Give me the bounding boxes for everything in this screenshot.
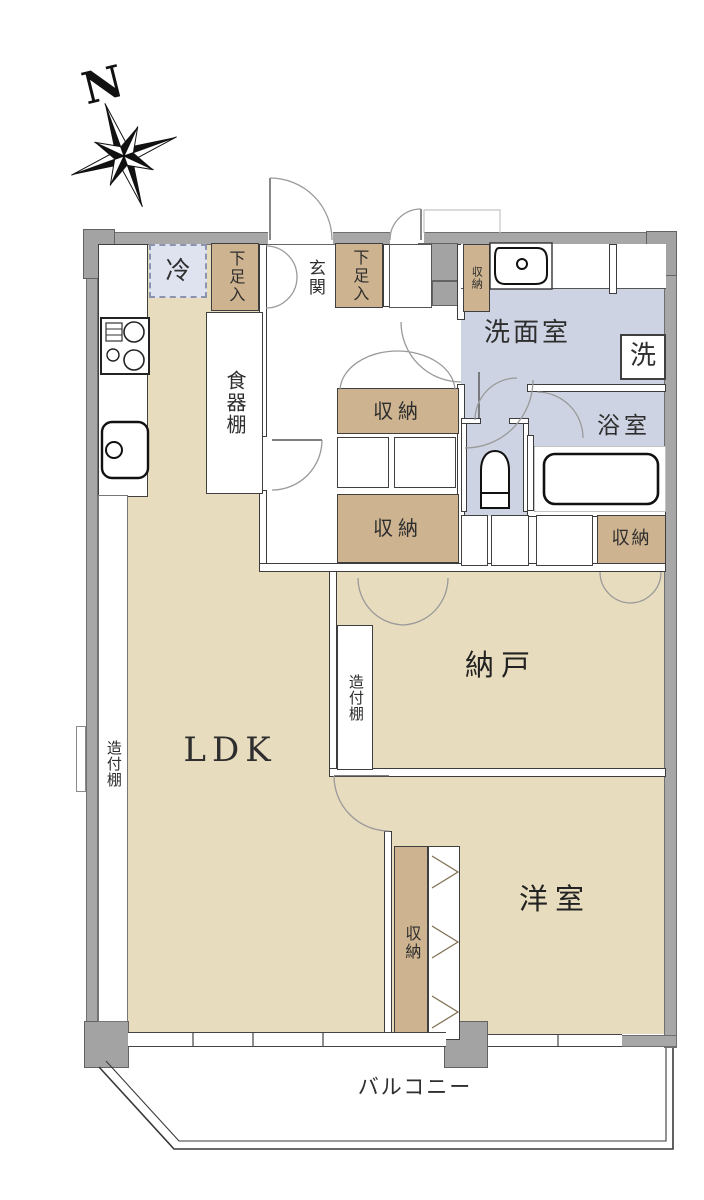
closet-folding-door-marks <box>432 856 458 1028</box>
linework-overlay <box>0 0 704 1200</box>
storageroom-door-arc-2 <box>403 578 448 625</box>
porch-door-arc <box>390 209 421 240</box>
entrance-closet-arc-1 <box>266 246 297 277</box>
entrance-closet-arc-2 <box>266 277 297 308</box>
storageroom-door-arc-3 <box>600 572 630 603</box>
floor-plan: N <box>0 0 704 1200</box>
storageroom-door-arc-4 <box>630 572 661 603</box>
ldk-door-arc <box>272 440 322 490</box>
balcony-outline-outer <box>99 1048 673 1149</box>
hall-closet-arc-1 <box>340 351 397 390</box>
window-mullions <box>193 1033 558 1046</box>
storageroom-door-arc-1 <box>358 578 403 625</box>
western-door-arc <box>334 776 389 831</box>
entrance-door-arc <box>270 178 332 240</box>
toilet-door-arc <box>475 378 517 420</box>
balcony-outline-inner <box>106 1048 666 1141</box>
porch-outline <box>424 210 500 233</box>
bath-door-arc <box>537 392 583 438</box>
